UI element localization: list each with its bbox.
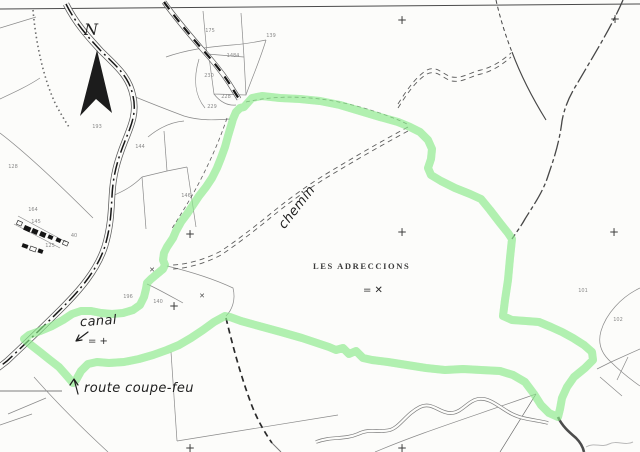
stream-track (316, 399, 548, 442)
place-mark: = ✕ (363, 285, 383, 296)
annotation-route-coupe-feu: route coupe-feu (84, 381, 194, 396)
dotted-boundary (33, 10, 69, 127)
annotation-canal: canal (80, 313, 118, 331)
buildings (16, 220, 68, 254)
highlighted-boundary (24, 96, 593, 417)
north-label: N (84, 20, 98, 39)
canal-mark: = + (88, 336, 108, 347)
sheet-border (0, 4, 640, 9)
boundary-lines-right (496, 0, 623, 239)
faint-scribble (586, 442, 633, 447)
canal-arrow (76, 332, 88, 341)
place-name-label: LES ADRECCIONS (313, 261, 410, 271)
cadastral-map: 1751391484230228229193144128146164145401… (0, 0, 640, 452)
road-secondary (164, 2, 239, 99)
